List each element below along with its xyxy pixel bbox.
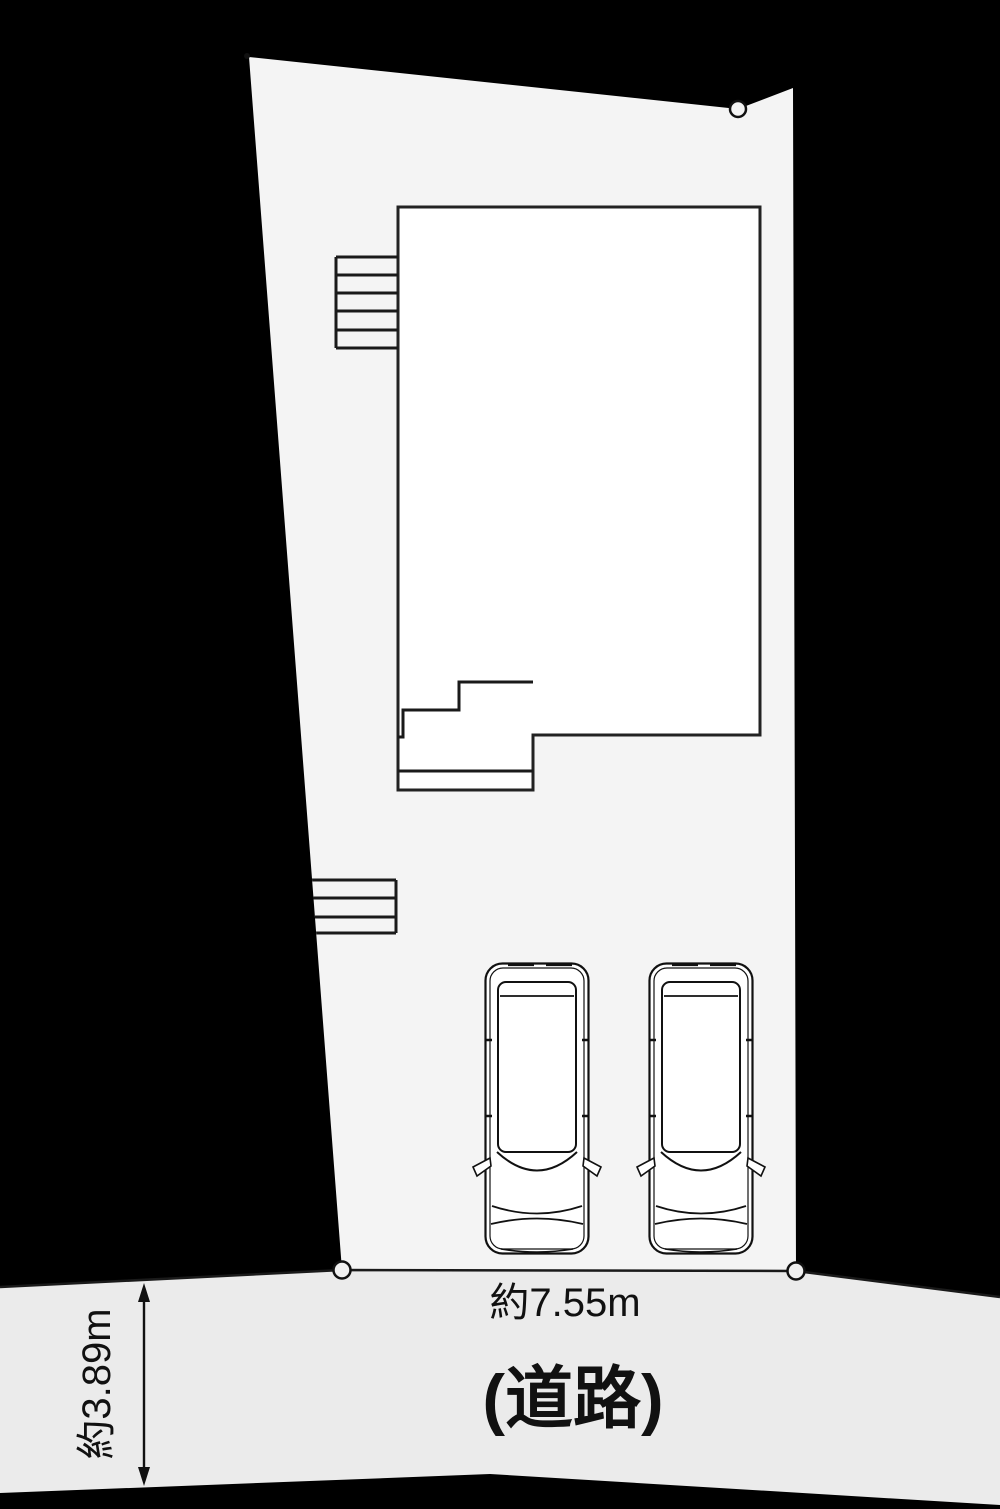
- boundary-marker-bottom-right: [788, 1263, 805, 1280]
- car-2: [637, 964, 765, 1254]
- site-plan: 約7.55m (道路) 約3.89m: [0, 0, 1000, 1509]
- corner-point-top-left: [244, 53, 250, 59]
- car-1: [473, 964, 601, 1254]
- building-footprint: [398, 207, 760, 790]
- road-label: (道路): [482, 1361, 663, 1437]
- boundary-marker-bottom-left: [334, 1262, 351, 1279]
- frontage-width-label: 約7.55m: [489, 1281, 640, 1325]
- road-width-label: 約3.89m: [75, 1308, 119, 1459]
- boundary-marker-top: [730, 101, 746, 117]
